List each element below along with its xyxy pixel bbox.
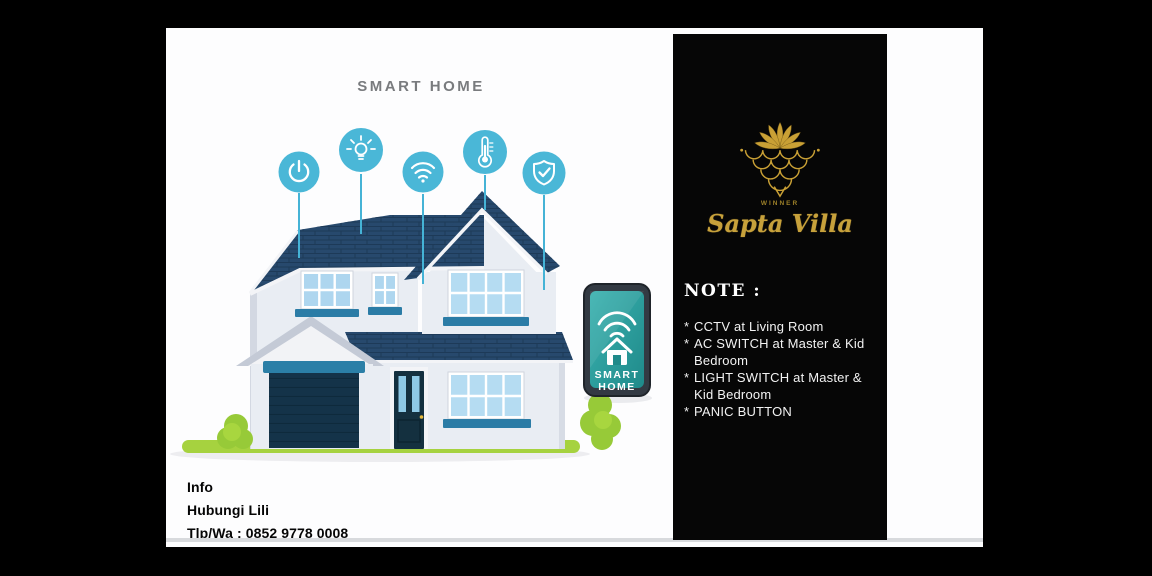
note-text: AC SWITCH at Master & Kid Bedroom [694, 335, 883, 369]
note-list: * CCTV at Living Room * AC SWITCH at Mas… [684, 318, 883, 420]
note-bullet: * [684, 403, 694, 420]
note-bullet: * [684, 318, 694, 335]
door-knob [420, 415, 424, 419]
note-text: LIGHT SWITCH at Master & Kid Bedroom [694, 369, 883, 403]
lightbulb-icon [339, 128, 383, 172]
front-door [390, 367, 428, 449]
garage-header [263, 361, 365, 373]
phone-label-line1: SMART [595, 369, 640, 381]
shield-check-icon [523, 152, 566, 195]
window-lower-right [443, 372, 531, 428]
contact-info: Info Hubungi Lili Tlp/Wa : 0852 9778 000… [187, 476, 348, 545]
mid-roof [345, 332, 573, 362]
note-text: PANIC BUTTON [694, 403, 883, 420]
floral-ornament-icon [732, 108, 828, 200]
brand-name: Sapta Villa [673, 209, 887, 238]
brand-card: WINNER Sapta Villa NOTE : * CCTV at Livi… [673, 34, 887, 540]
bush-left [217, 414, 253, 449]
note-item: * LIGHT SWITCH at Master & Kid Bedroom [684, 369, 883, 403]
note-title: NOTE : [684, 281, 761, 301]
smartphone: SMART HOME [584, 284, 650, 396]
window-gable [443, 270, 529, 326]
wifi-icon [403, 152, 444, 193]
power-icon [279, 152, 320, 193]
brand-subtext: WINNER [673, 200, 887, 207]
contact-info-line: Info [187, 476, 348, 499]
window-upper-narrow [368, 273, 402, 315]
smart-home-panel: SMART HOME [166, 28, 983, 547]
flyer-stage: SMART HOME [0, 0, 1152, 576]
note-bullet: * [684, 335, 694, 369]
note-item: * CCTV at Living Room [684, 318, 883, 335]
thermometer-icon [463, 130, 507, 174]
smart-home-illustration: SMART HOME [166, 28, 676, 547]
phone-label-line2: HOME [598, 381, 636, 393]
window-upper-left [295, 271, 359, 317]
contact-info-line: Hubungi Lili [187, 499, 348, 522]
note-item: * AC SWITCH at Master & Kid Bedroom [684, 335, 883, 369]
note-item: * PANIC BUTTON [684, 403, 883, 420]
note-text: CCTV at Living Room [694, 318, 883, 335]
note-bullet: * [684, 369, 694, 403]
